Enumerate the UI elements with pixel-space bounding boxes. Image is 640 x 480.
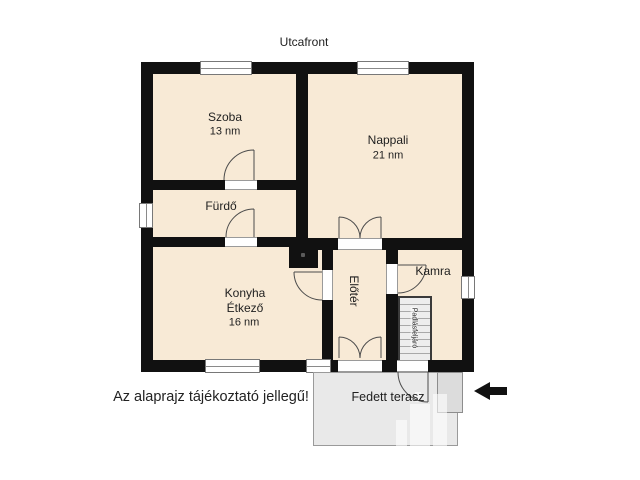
room-label-padlasfeljaro: Padlásfeljáró xyxy=(411,307,418,349)
room-label-fedett-terasz: Fedett terasz xyxy=(352,390,425,404)
entrance-arrow-left-icon xyxy=(474,382,507,400)
wall-konyha-eloter xyxy=(322,242,333,360)
room-area-szoba: 13 nm xyxy=(210,126,241,139)
door-opening-szoba xyxy=(225,180,257,190)
disclaimer-text: Az alaprajz tájékoztató jellegű! xyxy=(113,389,309,405)
room-label-kamra: Kamra xyxy=(415,265,450,279)
wall-north xyxy=(141,62,474,74)
window-nappali-north xyxy=(357,61,409,75)
door-opening-nappali-eloter xyxy=(338,238,382,250)
wall-east xyxy=(462,62,474,372)
window-furdo-west xyxy=(139,203,153,228)
door-opening-eloter-terasz xyxy=(338,360,382,372)
window-szoba-north xyxy=(200,61,252,75)
door-opening-konyha xyxy=(322,270,333,300)
room-label-konyha: Konyha xyxy=(225,287,266,301)
window-kamra-east xyxy=(461,276,475,299)
room-area-nappali: 21 nm xyxy=(373,150,404,163)
door-opening-stairs-terasz xyxy=(397,360,428,372)
room-area-konyha: 16 nm xyxy=(229,317,260,330)
street-front-label: Utcafront xyxy=(280,36,329,50)
room-label-furdo: Fürdő xyxy=(205,200,236,214)
wall-szoba-nappali xyxy=(296,74,308,250)
chimney-flue-dot xyxy=(301,253,305,257)
room-label-etkezo: Étkező xyxy=(227,302,264,316)
room-label-nappali: Nappali xyxy=(368,134,409,148)
floor-plan-canvas: Utcafront xyxy=(0,0,640,480)
room-label-szoba: Szoba xyxy=(208,111,242,125)
door-opening-furdo xyxy=(225,237,257,247)
room-label-eloter: Előtér xyxy=(347,275,361,306)
door-opening-kamra xyxy=(386,264,398,294)
window-konyha-south xyxy=(205,359,260,373)
window-konyha-south-small xyxy=(306,359,331,373)
